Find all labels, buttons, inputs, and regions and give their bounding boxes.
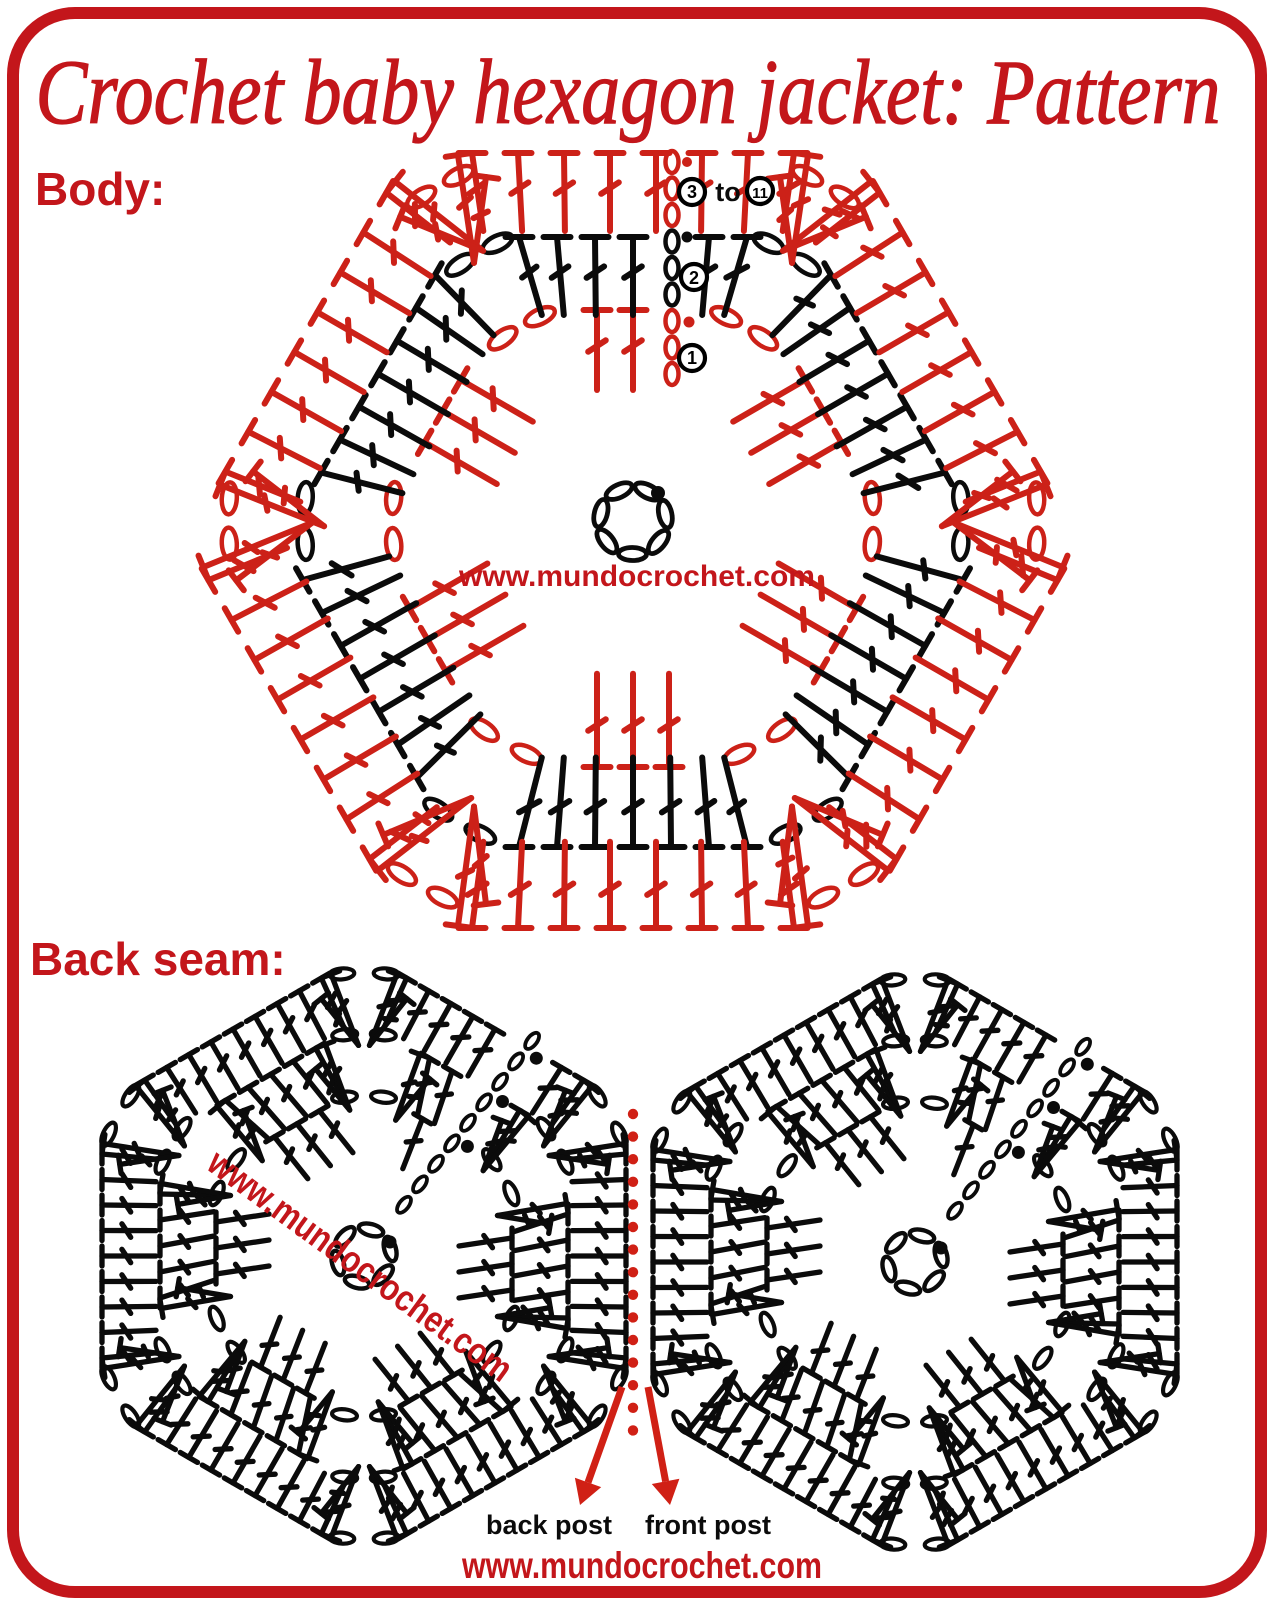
svg-text:1: 1	[687, 348, 697, 368]
svg-text:Body:: Body:	[35, 163, 165, 215]
svg-text:back post: back post	[486, 1510, 612, 1540]
svg-text:front post: front post	[645, 1510, 771, 1540]
svg-text:www.mundocrochet.com: www.mundocrochet.com	[458, 560, 815, 593]
svg-text:to: to	[715, 177, 740, 207]
svg-text:11: 11	[752, 185, 768, 202]
svg-text:Back seam:: Back seam:	[30, 933, 286, 985]
svg-text:3: 3	[687, 182, 697, 202]
svg-text:www.mundocrochet.com: www.mundocrochet.com	[461, 1545, 822, 1586]
svg-text:2: 2	[689, 268, 699, 288]
svg-text:Crochet baby hexagon jacket: P: Crochet baby hexagon jacket: Pattern	[36, 41, 1221, 143]
